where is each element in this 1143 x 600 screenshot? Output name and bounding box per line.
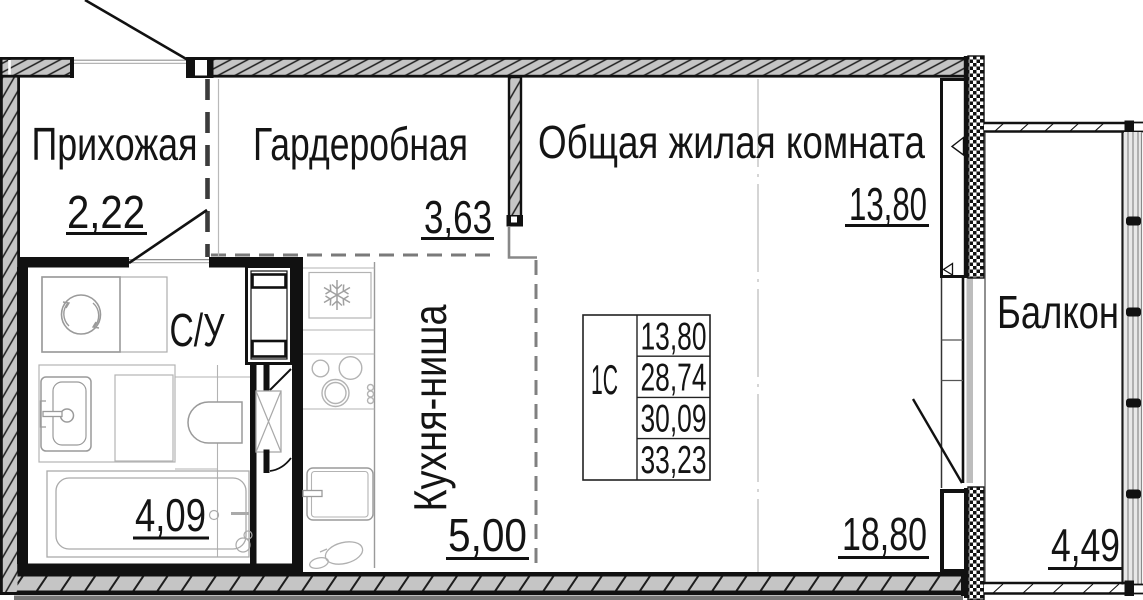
svg-text:4,09: 4,09 (135, 489, 206, 541)
svg-text:Гардеробная: Гардеробная (253, 118, 468, 170)
svg-text:13,80: 13,80 (641, 316, 707, 359)
svg-text:33,23: 33,23 (641, 439, 707, 482)
svg-text:Балкон: Балкон (997, 286, 1119, 338)
svg-text:1С: 1С (591, 356, 618, 403)
svg-text:13,80: 13,80 (849, 178, 927, 230)
svg-text:4,49: 4,49 (1051, 519, 1120, 571)
svg-text:5,00: 5,00 (448, 509, 527, 561)
svg-text:30,09: 30,09 (641, 398, 707, 441)
svg-text:28,74: 28,74 (641, 357, 707, 400)
svg-text:С/У: С/У (170, 304, 226, 356)
svg-text:3,63: 3,63 (424, 191, 492, 243)
svg-text:Кухня-ниша: Кухня-ниша (404, 304, 456, 511)
svg-text:Прихожая: Прихожая (32, 118, 198, 170)
svg-text:2,22: 2,22 (67, 186, 145, 238)
svg-text:Общая жилая комната: Общая жилая комната (538, 116, 925, 168)
svg-text:18,80: 18,80 (842, 508, 927, 560)
